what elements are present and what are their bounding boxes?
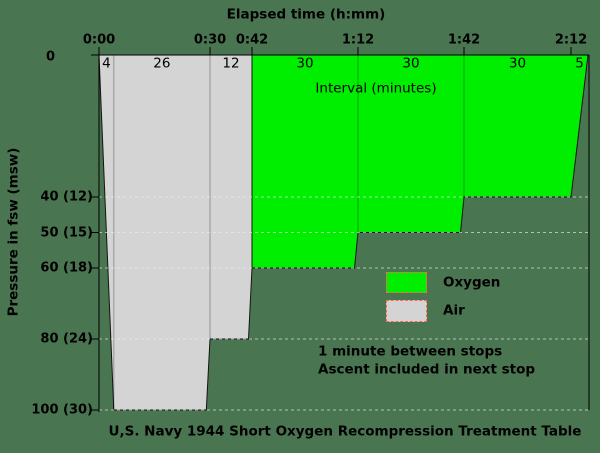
y-tick-label-40: 40 (12) [40, 191, 93, 204]
air-profile-region [99, 55, 252, 410]
interval-label-1-air: 26 [153, 57, 170, 71]
legend-label-oxygen: Oxygen [443, 276, 500, 290]
x-tick-label-1:12: 1:12 [342, 34, 374, 47]
interval-label-0-air: 4 [102, 57, 111, 71]
interval-label-4-oxygen: 30 [402, 57, 419, 71]
x-tick-label-0:00: 0:00 [83, 34, 115, 47]
x-tick-label-2:12: 2:12 [555, 34, 587, 47]
note-line-2: Ascent included in next stop [318, 363, 535, 377]
interval-axis-label: Interval (minutes) [315, 82, 436, 96]
interval-label-3-oxygen: 30 [296, 57, 313, 71]
y-tick-label-60: 60 (18) [40, 262, 93, 275]
y-tick-label-0: 0 [46, 51, 55, 64]
interval-label-2-air: 12 [222, 57, 239, 71]
interval-label-6-oxygen: 5 [575, 57, 584, 71]
recompression-treatment-chart: Elapsed time (h:mm) Pressure in fsw (msw… [0, 0, 600, 453]
x-tick-label-0:42: 0:42 [236, 34, 268, 47]
note-line-1: 1 minute between stops [318, 345, 502, 359]
interval-label-5-oxygen: 30 [509, 57, 526, 71]
legend-swatch-air [386, 300, 427, 322]
legend-swatch-oxygen [386, 272, 427, 293]
chart-caption: U,S. Navy 1944 Short Oxygen Recompressio… [109, 425, 582, 439]
y-tick-label-80: 80 (24) [40, 333, 93, 346]
y-axis-title: Pressure in fsw (msw) [7, 148, 21, 317]
legend-label-air: Air [443, 304, 465, 318]
x-axis-title: Elapsed time (h:mm) [227, 8, 386, 22]
y-tick-label-50: 50 (15) [40, 226, 93, 239]
x-tick-label-0:30: 0:30 [194, 34, 226, 47]
y-tick-label-100: 100 (30) [31, 404, 93, 417]
x-tick-label-1:42: 1:42 [448, 34, 480, 47]
